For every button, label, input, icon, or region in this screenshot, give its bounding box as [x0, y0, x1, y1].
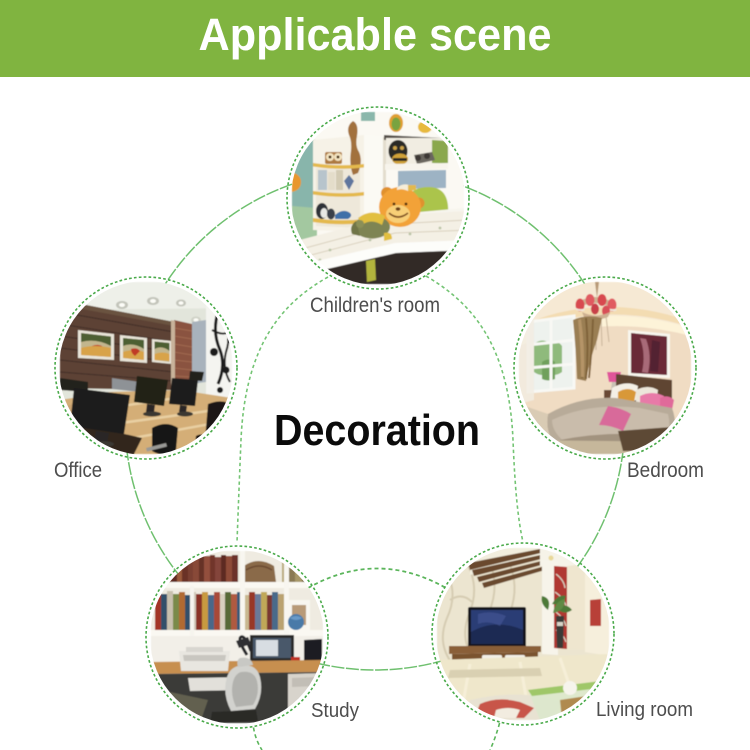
svg-text:Children's room: Children's room	[310, 293, 440, 317]
svg-text:Decoration: Decoration	[274, 406, 480, 455]
svg-text:Applicable scene: Applicable scene	[199, 9, 552, 60]
svg-text:Office: Office	[54, 458, 102, 482]
svg-text:Bedroom: Bedroom	[627, 458, 704, 482]
svg-text:Living room: Living room	[596, 698, 693, 721]
svg-text:Study: Study	[311, 699, 360, 722]
